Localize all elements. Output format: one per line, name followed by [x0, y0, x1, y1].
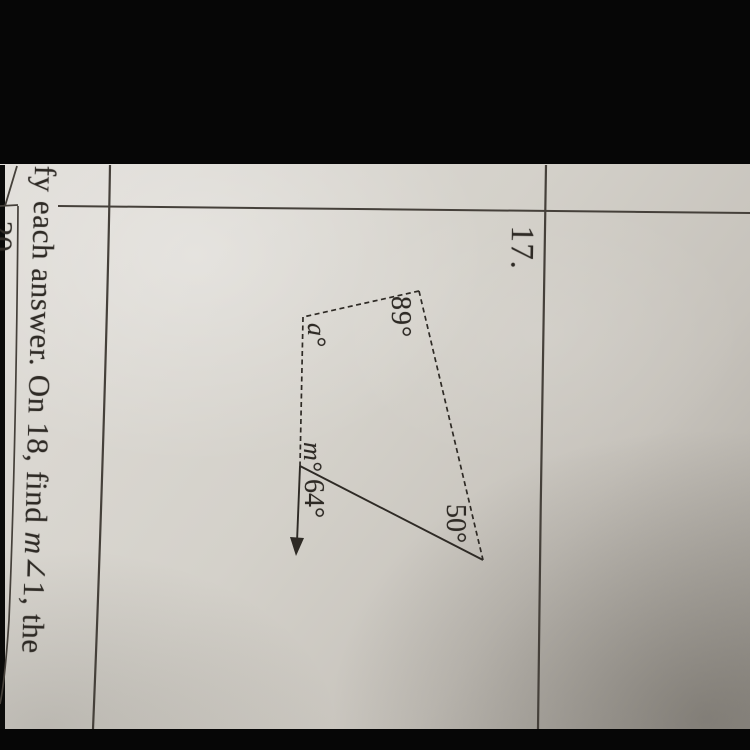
next-problem-number: 20 [0, 220, 18, 252]
footer-variable-m: m [18, 531, 54, 555]
letterbox-bottom [0, 729, 750, 750]
footer-text-post: ∠1, the [15, 554, 53, 654]
angle-label-a: a° [303, 323, 329, 346]
worksheet-drawing-layer [0, 0, 750, 750]
angle-label-89: 89° [386, 296, 414, 338]
grid-corner-segment [0, 205, 18, 206]
problem-number: 17. [504, 225, 538, 270]
grid-line-vertical-left [93, 165, 110, 729]
angle-label-m: m° [299, 442, 325, 471]
angle-label-50: 50° [441, 504, 469, 543]
angle-label-64: 64° [299, 479, 327, 518]
ray-arrowhead-icon [290, 537, 304, 556]
grid-line-top-left-diagonal [5, 166, 17, 206]
grid-line-horizontal [58, 206, 750, 213]
